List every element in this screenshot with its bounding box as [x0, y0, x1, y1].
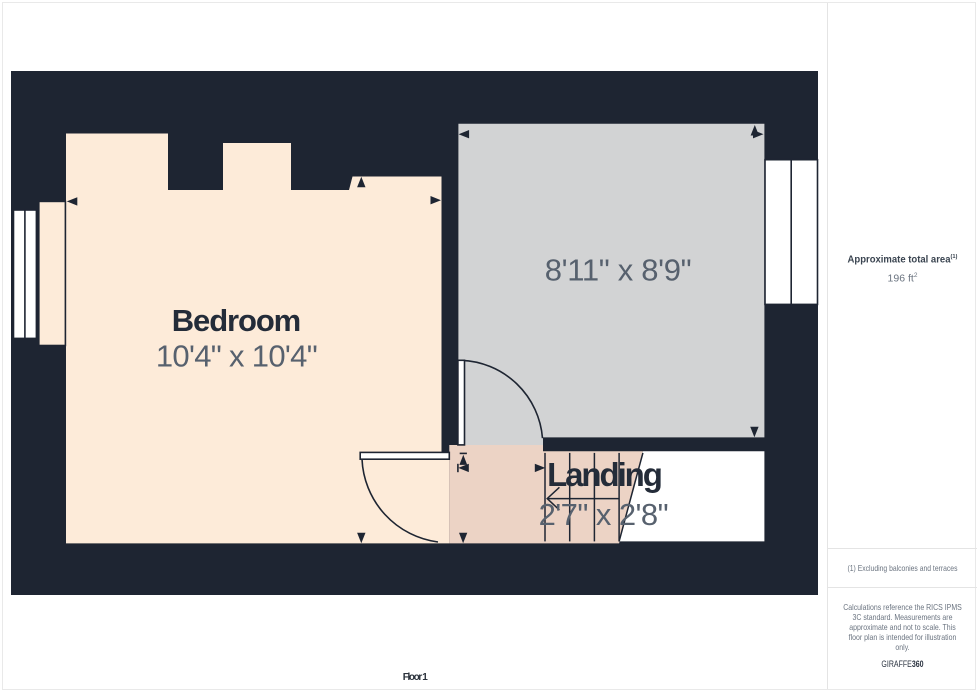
svg-text:Landing: Landing — [547, 456, 663, 493]
svg-text:10'4" x 10'4": 10'4" x 10'4" — [156, 339, 318, 374]
svg-text:Floor 1: Floor 1 — [403, 672, 428, 683]
svg-text:8'11" x 8'9": 8'11" x 8'9" — [545, 253, 692, 288]
svg-text:Bedroom: Bedroom — [172, 303, 302, 338]
svg-text:2'7" x 2'8": 2'7" x 2'8" — [539, 497, 669, 532]
